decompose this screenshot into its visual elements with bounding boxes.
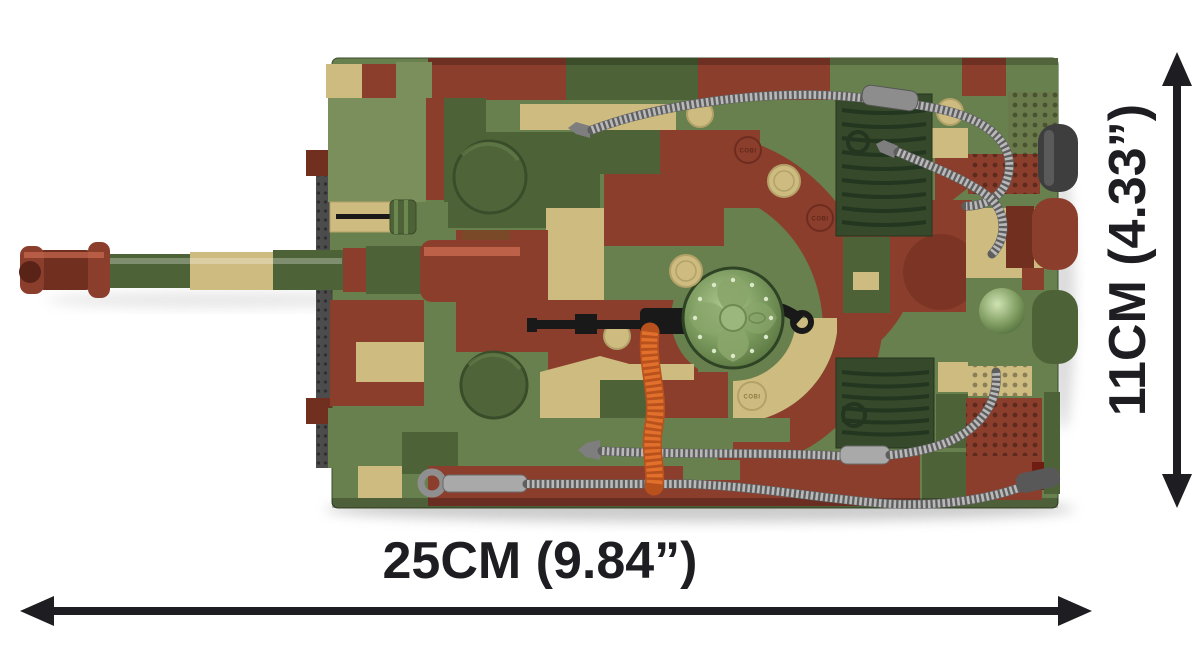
engine-grille-bottom bbox=[836, 358, 968, 448]
svg-text:COBI: COBI bbox=[740, 149, 757, 155]
product-dimension-image: COBI COBI COBI bbox=[0, 0, 1200, 649]
muzzle-brake bbox=[19, 242, 110, 298]
cobi-stud-3: COBI bbox=[738, 382, 766, 410]
orange-track-strip bbox=[649, 332, 655, 486]
height-arrow bbox=[1162, 52, 1192, 508]
antenna bbox=[330, 200, 416, 234]
svg-text:COBI: COBI bbox=[744, 395, 761, 401]
width-arrow bbox=[20, 596, 1092, 626]
width-dimension-label: 25CM (9.84”) bbox=[240, 531, 840, 591]
height-dimension-label: 11CM (4.33”) bbox=[1100, 50, 1156, 470]
cobi-stud-1: COBI bbox=[735, 137, 761, 163]
cobi-stud-2: COBI bbox=[807, 205, 833, 231]
svg-text:COBI: COBI bbox=[812, 217, 829, 223]
